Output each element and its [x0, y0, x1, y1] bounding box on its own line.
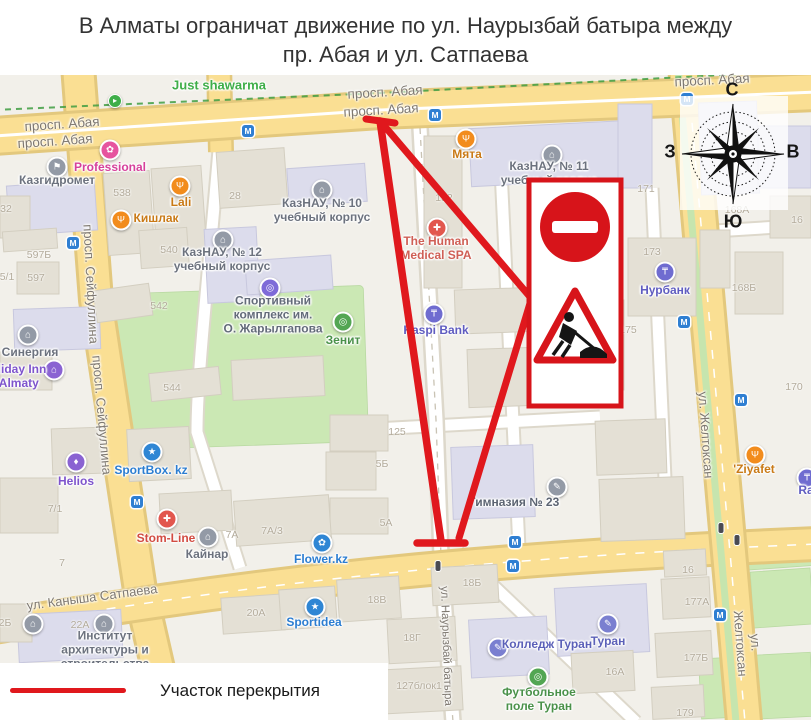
legend-label: Участок перекрытия [160, 681, 320, 701]
no-entry-sign [540, 192, 610, 262]
closure-lines [366, 119, 531, 543]
closure-line-sample [10, 688, 126, 693]
compass-east-label: В [787, 142, 800, 163]
compass-rose [680, 96, 788, 210]
closure-overlay [0, 0, 811, 720]
compass-south-label: Ю [724, 212, 743, 233]
screenshot-root: просп. Абаяпросп. Абаяпросп. Абаяпросп. … [0, 0, 811, 720]
compass-west-label: З [664, 142, 675, 163]
compass-north-label: С [726, 80, 739, 101]
sign-panel [529, 180, 621, 406]
map[interactable]: просп. Абаяпросп. Абаяпросп. Абаяпросп. … [0, 0, 811, 720]
legend: Участок перекрытия [0, 663, 388, 720]
